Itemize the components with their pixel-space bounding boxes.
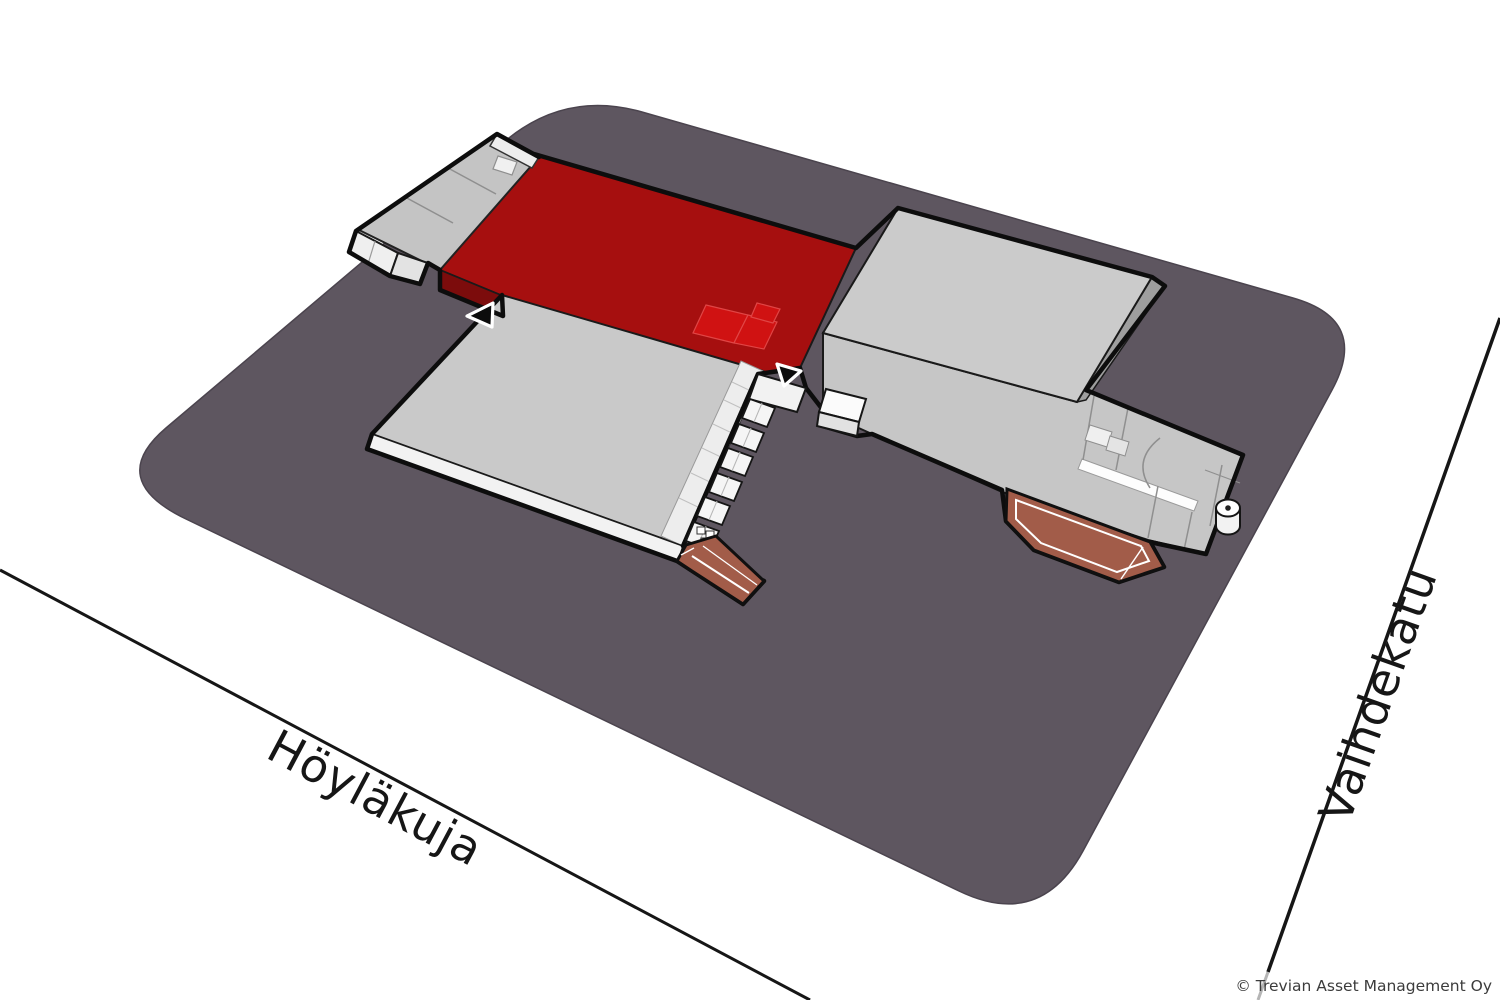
copyright-notice: © Trevian Asset Management Oy bbox=[1235, 977, 1492, 995]
dock-block bbox=[697, 527, 705, 534]
street-label-vaihdekatu: Vaihdekatu bbox=[1308, 560, 1448, 829]
tank-cylinder bbox=[1216, 500, 1240, 535]
site-plan-svg: Höyläkuja Vaihdekatu © Trevian Asset Man… bbox=[0, 0, 1500, 1000]
tank-cap bbox=[1225, 505, 1231, 511]
site-plan-illustration: Höyläkuja Vaihdekatu © Trevian Asset Man… bbox=[0, 0, 1500, 1000]
street-label-hoylakuja: Höyläkuja bbox=[259, 719, 492, 877]
